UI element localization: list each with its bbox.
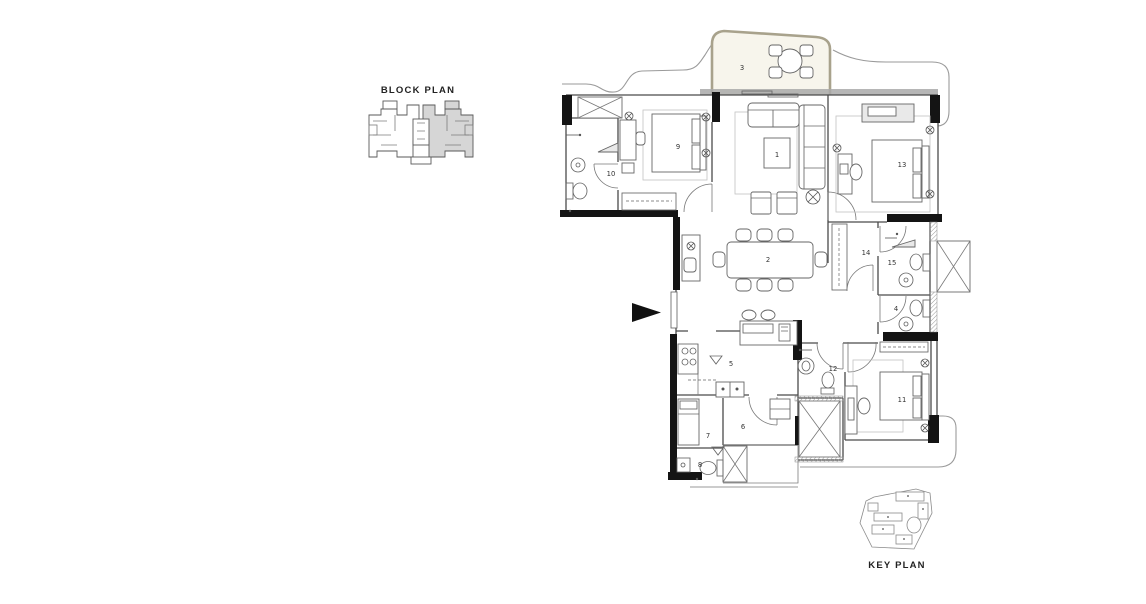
floor-plan-canvas: BLOCK PLAN [0,0,1146,604]
ceiling-fan-icon [806,190,820,204]
room-7-furniture [678,399,699,445]
room-label-6: 6 [741,423,745,431]
entry-arrow-icon [632,303,661,322]
room-label-9: 9 [676,143,680,151]
kitchen-fixtures [678,310,797,397]
room-label-14: 14 [862,249,871,257]
room-label-15: 15 [888,259,897,267]
room-label-10: 10 [607,170,616,178]
room-label-13: 13 [898,161,907,169]
entry-door [671,292,677,328]
bedroom-9-furniture [620,110,707,180]
room-label-5: 5 [729,360,733,368]
bedroom-13-furniture [836,104,930,212]
room-label-1: 1 [775,151,779,159]
key-plan-title: KEY PLAN [868,560,925,571]
balcony-wall [712,31,830,95]
room-label-12: 12 [829,365,838,373]
room-label-3: 3 [740,64,744,72]
room-label-4: 4 [894,305,898,313]
bathroom-4-fixtures [899,300,930,331]
key-plan-drawing [860,489,932,549]
block-plan-drawing [369,101,473,164]
room-label-7: 7 [706,432,710,440]
room-label-11: 11 [898,396,907,404]
room-label-8: 8 [698,461,702,469]
block-plan-title: BLOCK PLAN [381,85,455,96]
living-room-furniture [735,103,825,214]
utility-6-furniture [770,399,790,419]
room-label-2: 2 [766,256,770,264]
floor-plan-page: BLOCK PLAN [0,0,1146,604]
window-band [700,89,938,95]
bedroom-11-furniture [845,360,929,434]
